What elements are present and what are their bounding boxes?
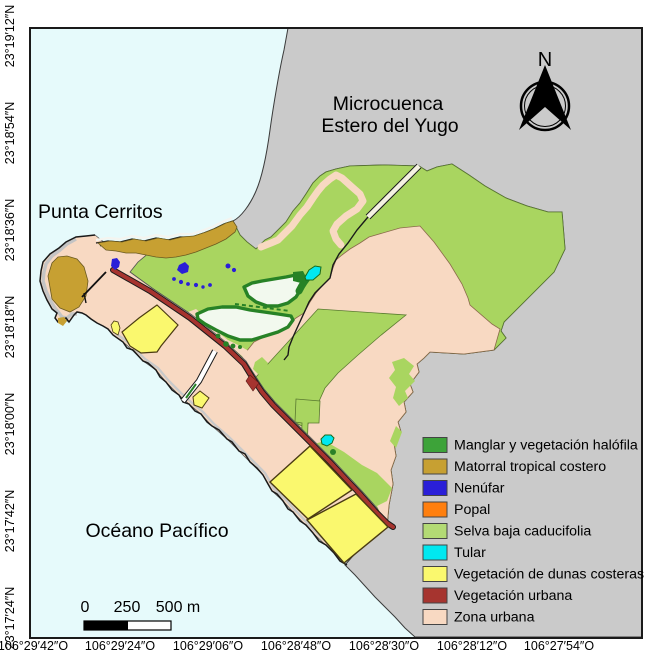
svg-text:23°17′42″N: 23°17′42″N <box>3 490 17 553</box>
svg-text:106°28′12″O: 106°28′12″O <box>437 639 507 653</box>
svg-text:23°18′36″N: 23°18′36″N <box>3 199 17 262</box>
svg-text:106°29′24″O: 106°29′24″O <box>85 639 155 653</box>
svg-text:Matorral tropical costero: Matorral tropical costero <box>454 459 606 475</box>
svg-text:106°29′42″O: 106°29′42″O <box>0 639 68 653</box>
svg-text:23°19′12″N: 23°19′12″N <box>3 5 17 68</box>
svg-text:Microcuenca: Microcuenca <box>333 93 444 115</box>
svg-text:106°27′54″O: 106°27′54″O <box>524 639 594 653</box>
svg-text:23°18′00″N: 23°18′00″N <box>3 393 17 456</box>
svg-text:Estero del Yugo: Estero del Yugo <box>321 115 458 137</box>
svg-text:Manglar y vegetación halófila: Manglar y vegetación halófila <box>454 438 638 454</box>
svg-text:106°28′30″O: 106°28′30″O <box>349 639 419 653</box>
svg-text:106°28′48″O: 106°28′48″O <box>261 639 331 653</box>
svg-text:Punta Cerritos: Punta Cerritos <box>38 201 163 223</box>
svg-text:0: 0 <box>81 599 90 616</box>
svg-text:Vegetación de dunas costeras: Vegetación de dunas costeras <box>454 567 644 583</box>
svg-text:23°18′18″N: 23°18′18″N <box>3 296 17 359</box>
svg-text:106°29′06″O: 106°29′06″O <box>173 639 243 653</box>
svg-text:500 m: 500 m <box>156 599 200 616</box>
svg-text:Tular: Tular <box>454 545 486 561</box>
svg-text:Selva baja caducifolia: Selva baja caducifolia <box>454 524 591 540</box>
svg-text:Océano Pacífico: Océano Pacífico <box>85 520 228 542</box>
svg-text:Popal: Popal <box>454 502 490 518</box>
svg-text:Nenúfar: Nenúfar <box>454 481 505 497</box>
svg-text:Zona urbana: Zona urbana <box>454 610 535 626</box>
svg-text:250: 250 <box>114 599 141 616</box>
svg-text:23°18′54″N: 23°18′54″N <box>3 102 17 165</box>
svg-text:Vegetación urbana: Vegetación urbana <box>454 588 572 604</box>
